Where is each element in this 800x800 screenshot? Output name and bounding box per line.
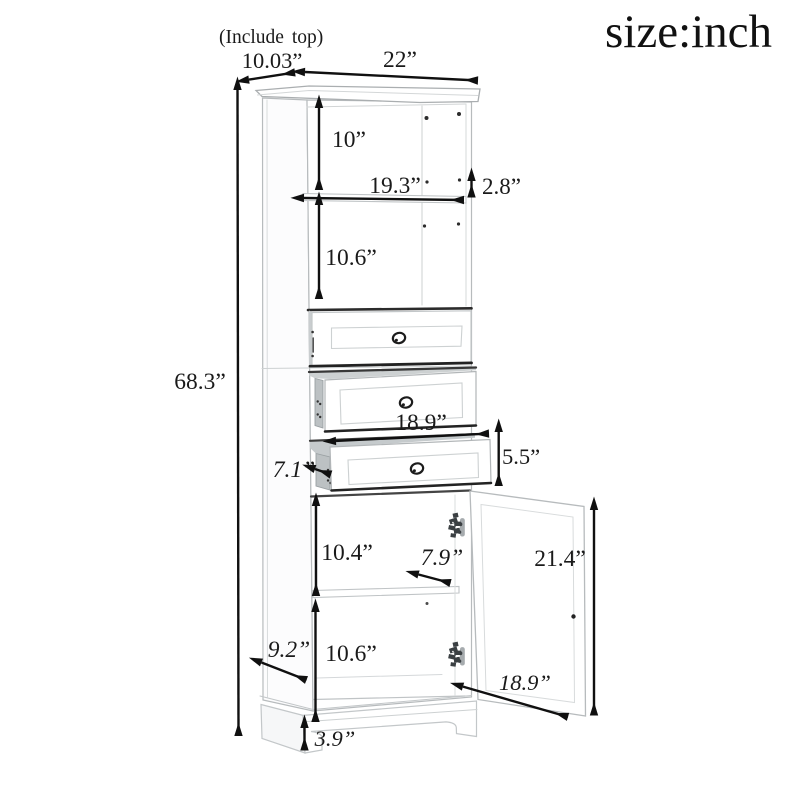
svg-text:22”: 22” — [383, 47, 417, 73]
svg-text:10.6”: 10.6” — [325, 641, 377, 667]
svg-text:9.2”: 9.2” — [268, 637, 310, 663]
svg-text:7.1”: 7.1” — [273, 457, 315, 483]
svg-text:10”: 10” — [332, 127, 366, 153]
svg-text:(Include top): (Include top) — [219, 27, 323, 48]
svg-text:21.4”: 21.4” — [534, 546, 586, 572]
svg-text:5.5”: 5.5” — [502, 444, 540, 469]
svg-text:7.9”: 7.9” — [421, 545, 463, 571]
svg-text:68.3”: 68.3” — [174, 369, 226, 395]
svg-text:10.4”: 10.4” — [321, 540, 373, 566]
svg-text:10.03”: 10.03” — [242, 48, 303, 73]
svg-text:10.6”: 10.6” — [325, 245, 377, 271]
svg-text:19.3”: 19.3” — [369, 173, 421, 199]
svg-text:18.9”: 18.9” — [499, 670, 551, 695]
svg-text:3.9”: 3.9” — [314, 726, 356, 751]
svg-text:2.8”: 2.8” — [482, 174, 521, 199]
svg-text:18.9”: 18.9” — [395, 410, 447, 436]
svg-text:size:inch: size:inch — [605, 6, 772, 58]
